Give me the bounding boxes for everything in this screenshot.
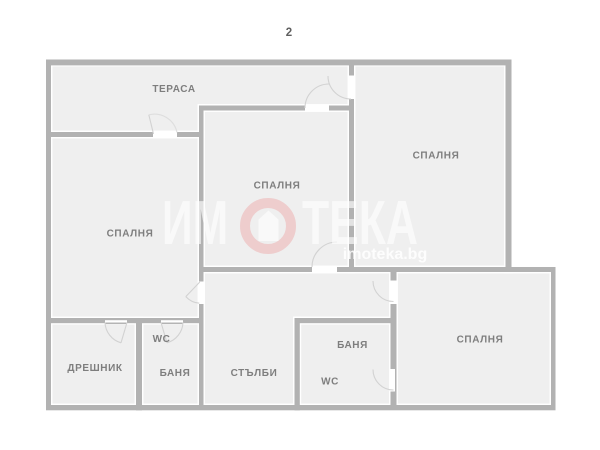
svg-text:ТЕРАСА: ТЕРАСА (152, 84, 195, 95)
svg-text:2: 2 (286, 27, 292, 39)
svg-text:WC: WC (321, 377, 339, 388)
svg-text:imoteka.bg: imoteka.bg (343, 246, 427, 263)
svg-text:БАНЯ: БАНЯ (337, 340, 368, 351)
svg-text:ДРЕШНИК: ДРЕШНИК (67, 363, 123, 374)
svg-text:ИМ: ИМ (162, 189, 228, 258)
svg-text:СПАЛНЯ: СПАЛНЯ (254, 181, 301, 192)
svg-text:БАНЯ: БАНЯ (160, 368, 191, 379)
svg-text:СПАЛНЯ: СПАЛНЯ (107, 228, 154, 239)
svg-text:СТЪЛБИ: СТЪЛБИ (231, 368, 278, 379)
svg-text:СПАЛНЯ: СПАЛНЯ (413, 151, 460, 162)
svg-text:WC: WC (153, 334, 171, 345)
svg-text:СПАЛНЯ: СПАЛНЯ (457, 335, 504, 346)
